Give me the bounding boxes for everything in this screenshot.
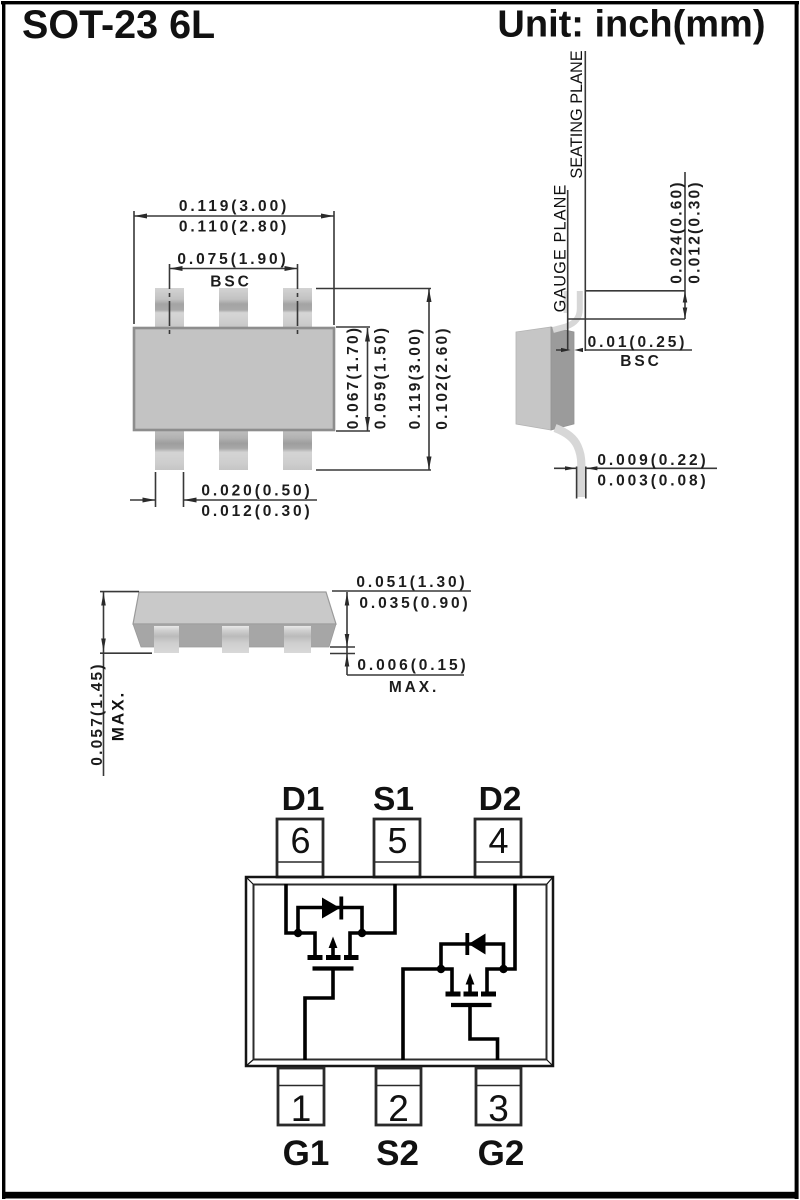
svg-text:SOT-23 6L: SOT-23 6L: [22, 3, 215, 47]
svg-text:0.057(1.45): 0.057(1.45): [89, 662, 106, 765]
svg-text:BSC: BSC: [210, 274, 251, 291]
svg-text:MAX.: MAX.: [389, 679, 439, 696]
svg-text:0.119(3.00): 0.119(3.00): [179, 198, 289, 215]
svg-text:G2: G2: [478, 1134, 525, 1173]
svg-text:0.006(0.15): 0.006(0.15): [357, 657, 468, 674]
svg-text:GAUGE PLANE: GAUGE PLANE: [552, 184, 570, 313]
svg-text:0.012(0.30): 0.012(0.30): [687, 180, 704, 283]
svg-text:0.035(0.90): 0.035(0.90): [359, 595, 470, 612]
svg-text:0.119(3.00): 0.119(3.00): [407, 327, 424, 430]
svg-text:0.012(0.30): 0.012(0.30): [201, 503, 312, 520]
svg-text:2: 2: [388, 1088, 409, 1129]
svg-text:BSC: BSC: [620, 353, 661, 370]
svg-text:1: 1: [291, 1088, 312, 1129]
svg-text:0.102(2.60): 0.102(2.60): [434, 326, 451, 429]
svg-text:MAX.: MAX.: [109, 691, 128, 742]
svg-text:0.024(0.60): 0.024(0.60): [669, 180, 686, 283]
svg-text:G1: G1: [283, 1134, 330, 1173]
svg-text:S2: S2: [376, 1134, 419, 1173]
svg-text:SEATING PLANE: SEATING PLANE: [568, 50, 586, 178]
svg-text:0.020(0.50): 0.020(0.50): [201, 483, 312, 500]
svg-text:3: 3: [488, 1088, 509, 1129]
svg-text:D2: D2: [479, 781, 522, 818]
svg-text:Unit: inch(mm): Unit: inch(mm): [497, 4, 765, 46]
svg-text:D1: D1: [282, 781, 325, 818]
svg-text:0.003(0.08): 0.003(0.08): [597, 473, 708, 490]
svg-text:0.059(1.50): 0.059(1.50): [373, 326, 390, 429]
svg-text:0.009(0.22): 0.009(0.22): [597, 452, 708, 469]
svg-text:0.051(1.30): 0.051(1.30): [356, 574, 467, 591]
svg-text:0.01(0.25): 0.01(0.25): [588, 334, 688, 351]
svg-text:0.110(2.80): 0.110(2.80): [179, 219, 289, 236]
svg-text:4: 4: [488, 820, 508, 861]
svg-text:5: 5: [387, 820, 407, 861]
svg-text:0.075(1.90): 0.075(1.90): [177, 251, 288, 268]
svg-text:S1: S1: [373, 781, 414, 818]
svg-text:6: 6: [290, 820, 310, 861]
svg-text:0.067(1.70): 0.067(1.70): [345, 326, 362, 429]
